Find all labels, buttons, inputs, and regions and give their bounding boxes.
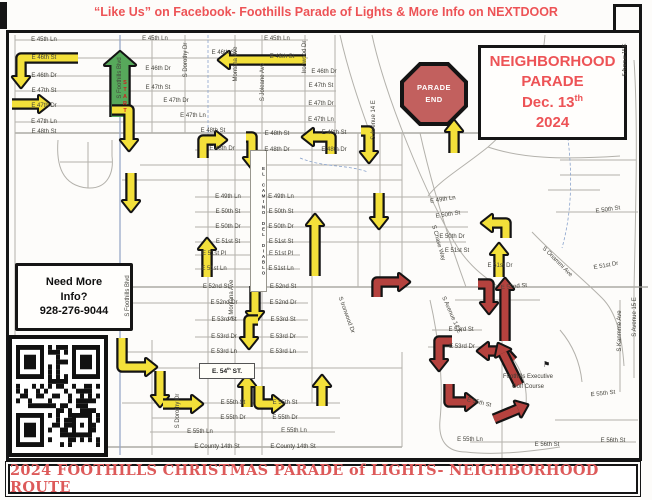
street-label: E 51st St xyxy=(269,239,293,245)
frame-notch xyxy=(613,4,642,7)
street-label: E 48th St xyxy=(265,131,290,137)
street-label: E 47th Dr xyxy=(308,101,333,107)
qr-code-image xyxy=(16,345,100,447)
parade-title-box: NEIGHBORHOOD PARADE Dec. 13th 2024 xyxy=(478,45,627,140)
street-label: E 46th St xyxy=(32,55,57,61)
street-label: E 50th Dr xyxy=(268,224,293,230)
street-label: S Dorothy Dr xyxy=(175,394,181,429)
street-label: Ironwood Dr xyxy=(302,41,308,74)
street-label: E 46th St xyxy=(270,54,295,60)
street-label: E 52nd Dr xyxy=(269,300,296,306)
street-label: E 47th Ln xyxy=(31,119,57,125)
street-label: E 55th Dr xyxy=(220,415,245,421)
parade-end-text: PARADE END xyxy=(399,61,469,127)
street-label: E 53rd Ln xyxy=(270,349,296,355)
title-line1: NEIGHBORHOOD xyxy=(490,52,616,72)
parade-flyer: “Like Us” on Facebook- Foothills Parade … xyxy=(0,0,652,500)
street-label: E 48th St xyxy=(32,129,57,135)
street-label: E 46th Dr xyxy=(311,69,336,75)
title-line2: PARADE xyxy=(521,72,583,92)
street-label: E 48th Dr xyxy=(209,146,234,152)
street-label: E 52nd St xyxy=(270,284,296,290)
street-label: S Avenue 14 E xyxy=(371,100,377,140)
title-date: Dec. 13th xyxy=(522,92,583,113)
street-label: E County 14th St xyxy=(270,444,315,450)
info-phone: 928-276-9044 xyxy=(40,304,109,319)
street-label: S Avenue 15 E xyxy=(622,44,628,77)
street-label: S Kanmme Ave xyxy=(617,310,623,351)
street-label: E 48th St xyxy=(322,130,347,136)
street-label: S Joleane Ave xyxy=(260,63,266,101)
street-label: E 46th Dr xyxy=(31,73,56,79)
street-label: E 53rd Dr xyxy=(270,334,296,340)
bottom-banner: 2024 FOOTHILLS CHRISTMAS PARADE of LIGHT… xyxy=(8,464,638,494)
street-label: E 45th Ln xyxy=(142,36,168,42)
street-label: E 45th Ln xyxy=(31,37,57,43)
street-label: E 48th Dr xyxy=(264,147,289,153)
street-label: S Avenue 15 E xyxy=(632,297,638,337)
street-label: E 55th Ln xyxy=(457,437,483,443)
street-label: E 50th Dr xyxy=(215,224,240,230)
street-label: S Foothills Blvd xyxy=(117,57,123,98)
street-label: E 47th Dr xyxy=(163,98,188,104)
qr-code xyxy=(8,335,108,457)
parade-end-sign: PARADE END xyxy=(399,61,469,127)
golf-flag-icon: ⚑ xyxy=(543,360,550,369)
street-label: E 55th St xyxy=(273,400,298,406)
title-year: 2024 xyxy=(536,113,569,133)
street-label: E 53rd Dr xyxy=(449,344,475,350)
info-box: Need More Info? 928-276-9044 xyxy=(15,263,133,331)
street-label-el-camino: EL CAMINO DEL DIABLO xyxy=(250,150,267,292)
golf-course-label: Foothills Executive Golf Course xyxy=(494,372,562,392)
street-label: E 51st Ln xyxy=(201,266,226,272)
street-label: E 51st Pl xyxy=(269,251,293,257)
street-label: E 50th St xyxy=(269,209,294,215)
street-label: S Foothills Blvd xyxy=(125,275,131,316)
street-label: E 47th St xyxy=(32,88,57,94)
street-label: E 55th St xyxy=(221,400,246,406)
street-label: E 51st Dr xyxy=(487,263,512,269)
street-label: E 47th St xyxy=(146,85,171,91)
street-label: E 56th St xyxy=(601,438,626,444)
e54th-st-box: E. 54th ST. xyxy=(199,363,255,379)
info-line2: Info? xyxy=(61,290,88,305)
street-label: E 47th Ln xyxy=(308,117,334,123)
street-label: E 51st St xyxy=(445,248,469,254)
street-label: E County 14th St xyxy=(194,444,239,450)
street-label: E 52nd St xyxy=(203,284,229,290)
street-label: E 55th Dr xyxy=(272,415,297,421)
street-label: E 47th Dr xyxy=(31,103,56,109)
street-label: E 55th Ln xyxy=(187,429,213,435)
e54-label: E. 54th ST. xyxy=(212,366,242,375)
parade-end-line: END xyxy=(425,94,442,106)
street-label: S Dorothy Dr xyxy=(183,43,189,78)
frame-notch xyxy=(639,4,642,33)
street-label: E 48th Dr xyxy=(321,147,346,153)
street-label: E 53rd St xyxy=(270,317,295,323)
street-label: E 53rd Dr xyxy=(211,334,237,340)
street-label: E 51st Pl xyxy=(202,251,226,257)
street-label: E 55th Ln xyxy=(281,428,307,434)
street-label: E 47th St xyxy=(309,83,334,89)
street-label: E 53rd Ln xyxy=(211,349,237,355)
street-label: E 50th St xyxy=(216,209,241,215)
street-label: E 50th Dr xyxy=(439,234,464,240)
street-label: S Montana Ave xyxy=(229,280,235,321)
street-label: E 46th Dr xyxy=(145,66,170,72)
street-label: E 51st St xyxy=(216,239,240,245)
street-label: E 47th Ln xyxy=(180,113,206,119)
street-label: E 48th St xyxy=(201,128,226,134)
golf-line1: Foothills Executive xyxy=(494,372,562,382)
golf-line2: Golf Course xyxy=(494,382,562,392)
street-label: Montana Ave xyxy=(233,47,239,82)
street-label: E 49th Ln xyxy=(268,194,294,200)
street-label: E 56th St xyxy=(535,442,560,448)
info-line1: Need More xyxy=(46,275,102,290)
frame-notch xyxy=(613,4,616,33)
street-label: E 49th Ln xyxy=(215,194,241,200)
parade-end-line: PARADE xyxy=(417,82,451,94)
street-label: E 51st Ln xyxy=(268,266,293,272)
street-label: E 45th Ln xyxy=(264,36,290,42)
top-banner: “Like Us” on Facebook- Foothills Parade … xyxy=(0,5,652,19)
